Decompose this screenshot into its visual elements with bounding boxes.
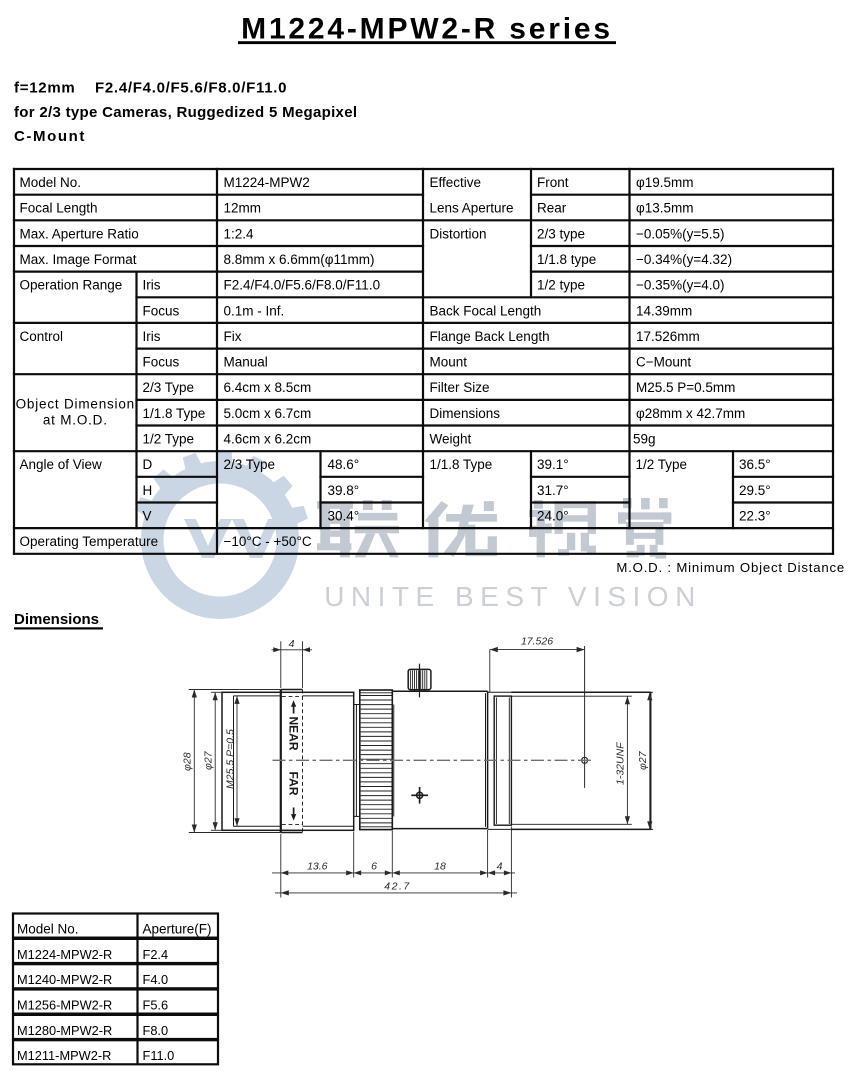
svg-text:F4.0: F4.0: [143, 972, 169, 987]
svg-text:Control: Control: [20, 329, 64, 344]
svg-text:M25.5 P=0.5mm: M25.5 P=0.5mm: [636, 380, 735, 395]
svg-text:Angle of View: Angle of View: [20, 457, 103, 472]
svg-text:42.7: 42.7: [384, 881, 410, 893]
svg-text:φ27: φ27: [637, 750, 649, 770]
svg-text:6: 6: [371, 861, 377, 873]
svg-text:12mm: 12mm: [224, 201, 262, 216]
svg-text:M25.5 P=0.5: M25.5 P=0.5: [225, 729, 237, 789]
svg-text:6.4cm x 8.5cm: 6.4cm x 8.5cm: [224, 380, 312, 395]
svg-text:for 2/3 type Cameras, Ruggediz: for 2/3 type Cameras, Ruggedized 5 Megap…: [14, 104, 357, 121]
svg-text:17.526: 17.526: [521, 636, 553, 648]
svg-text:−10°C - +50°C: −10°C - +50°C: [224, 534, 312, 549]
svg-text:Aperture(F): Aperture(F): [143, 922, 212, 937]
svg-text:Model No.: Model No.: [20, 175, 82, 190]
svg-text:F2.4/F4.0/F5.6/F8.0/F11.0: F2.4/F4.0/F5.6/F8.0/F11.0: [224, 278, 381, 293]
svg-text:39.8°: 39.8°: [328, 483, 360, 498]
svg-text:5.0cm x 6.7cm: 5.0cm x 6.7cm: [224, 406, 312, 421]
svg-text:48.6°: 48.6°: [328, 457, 360, 472]
svg-text:1-32UNF: 1-32UNF: [615, 742, 627, 785]
svg-text:Manual: Manual: [224, 355, 268, 370]
svg-text:1/2 type: 1/2 type: [537, 278, 585, 293]
svg-text:59g: 59g: [633, 432, 656, 447]
svg-text:30.4°: 30.4°: [328, 509, 360, 524]
svg-text:V: V: [143, 509, 152, 524]
svg-text:1:2.4: 1:2.4: [224, 226, 255, 241]
svg-text:F11.0: F11.0: [143, 1048, 175, 1063]
svg-text:Max. Aperture Ratio: Max. Aperture Ratio: [20, 226, 139, 241]
svg-text:UNITE BEST VISION: UNITE BEST VISION: [324, 581, 702, 612]
svg-text:0.1m - Inf.: 0.1m - Inf.: [224, 303, 285, 318]
svg-text:F5.6: F5.6: [143, 998, 169, 1013]
svg-text:Iris: Iris: [143, 278, 161, 293]
svg-text:22.3°: 22.3°: [739, 509, 771, 524]
svg-text:−0.05%(y=5.5): −0.05%(y=5.5): [636, 226, 725, 241]
svg-text:1/1.8 Type: 1/1.8 Type: [430, 457, 493, 472]
svg-text:4: 4: [289, 638, 295, 650]
svg-text:Front: Front: [537, 175, 569, 190]
svg-text:1/1.8 type: 1/1.8 type: [537, 252, 596, 267]
svg-text:Operating Temperature: Operating Temperature: [20, 534, 159, 549]
svg-text:18: 18: [434, 861, 446, 873]
svg-text:Dimensions: Dimensions: [14, 611, 99, 628]
svg-text:FAR: FAR: [286, 772, 300, 796]
svg-text:Lens Aperture: Lens Aperture: [430, 201, 514, 216]
svg-text:24.0°: 24.0°: [537, 509, 569, 524]
svg-text:F2.4: F2.4: [143, 947, 169, 962]
svg-text:Flange Back Length: Flange Back Length: [430, 329, 550, 344]
svg-text:Effective: Effective: [430, 175, 482, 190]
svg-text:M1211-MPW2-R: M1211-MPW2-R: [17, 1048, 111, 1063]
svg-text:4: 4: [497, 861, 503, 873]
svg-text:1/2 Type: 1/2 Type: [143, 432, 195, 447]
svg-text:1/2 Type: 1/2 Type: [636, 457, 688, 472]
svg-text:Back Focal Length: Back Focal Length: [430, 303, 542, 318]
svg-text:M1256-MPW2-R: M1256-MPW2-R: [17, 998, 112, 1013]
svg-text:4.6cm x 6.2cm: 4.6cm x 6.2cm: [224, 432, 312, 447]
svg-text:Mount: Mount: [430, 355, 468, 370]
svg-text:Max. Image Format: Max. Image Format: [20, 252, 137, 267]
svg-text:D: D: [143, 457, 153, 472]
svg-text:Rear: Rear: [537, 201, 567, 216]
svg-text:φ28: φ28: [182, 752, 194, 771]
svg-text:31.7°: 31.7°: [537, 483, 569, 498]
svg-text:Dimensions: Dimensions: [430, 406, 501, 421]
svg-text:φ13.5mm: φ13.5mm: [636, 201, 694, 216]
svg-text:f=12mm F2.4/F4.0/F5.6/F8.0/: f=12mm F2.4/F4.0/F5.6/F8.0/F11.0: [14, 80, 287, 97]
svg-text:−0.35%(y=4.0): −0.35%(y=4.0): [636, 278, 725, 293]
svg-text:1/1.8 Type: 1/1.8 Type: [143, 406, 206, 421]
svg-text:Fix: Fix: [224, 329, 242, 344]
svg-text:2/3 Type: 2/3 Type: [143, 380, 195, 395]
svg-text:Focal Length: Focal Length: [20, 201, 98, 216]
svg-text:M.O.D. : Minimum Object Distan: M.O.D. : Minimum Object Distance: [616, 560, 845, 575]
svg-text:φ28mm x 42.7mm: φ28mm x 42.7mm: [636, 406, 745, 421]
svg-text:17.526mm: 17.526mm: [636, 329, 700, 344]
svg-text:Iris: Iris: [143, 329, 161, 344]
svg-text:M1224-MPW2-R series: M1224-MPW2-R series: [241, 13, 613, 46]
svg-text:Focus: Focus: [143, 303, 180, 318]
svg-text:φ27: φ27: [203, 750, 215, 770]
svg-text:Model No.: Model No.: [17, 922, 79, 937]
svg-text:Focus: Focus: [143, 355, 180, 370]
svg-text:Distortion: Distortion: [430, 226, 487, 241]
svg-text:H: H: [143, 483, 153, 498]
svg-text:NEAR: NEAR: [286, 717, 300, 751]
svg-text:M1224-MPW2: M1224-MPW2: [224, 175, 310, 190]
svg-text:C-Mount: C-Mount: [14, 128, 86, 145]
svg-text:C−Mount: C−Mount: [636, 355, 691, 370]
svg-text:Filter Size: Filter Size: [430, 380, 490, 395]
svg-text:Weight: Weight: [430, 432, 472, 447]
svg-text:39.1°: 39.1°: [537, 457, 569, 472]
svg-text:29.5°: 29.5°: [739, 483, 771, 498]
svg-text:M1240-MPW2-R: M1240-MPW2-R: [17, 972, 112, 987]
svg-text:2/3 Type: 2/3 Type: [224, 457, 276, 472]
svg-text:φ19.5mm: φ19.5mm: [636, 175, 694, 190]
svg-text:at M.O.D.: at M.O.D.: [43, 413, 108, 428]
svg-text:M1224-MPW2-R: M1224-MPW2-R: [17, 947, 112, 962]
svg-text:Operation Range: Operation Range: [20, 278, 123, 293]
svg-text:−0.34%(y=4.32): −0.34%(y=4.32): [636, 252, 732, 267]
svg-text:F8.0: F8.0: [143, 1023, 169, 1038]
svg-text:14.39mm: 14.39mm: [636, 303, 692, 318]
svg-text:8.8mm x 6.6mm(φ11mm): 8.8mm x 6.6mm(φ11mm): [224, 252, 375, 267]
svg-text:Object Dimension: Object Dimension: [16, 396, 135, 411]
svg-text:2/3 type: 2/3 type: [537, 226, 585, 241]
svg-text:36.5°: 36.5°: [739, 457, 771, 472]
svg-text:M1280-MPW2-R: M1280-MPW2-R: [17, 1023, 112, 1038]
svg-text:13.6: 13.6: [307, 861, 328, 873]
